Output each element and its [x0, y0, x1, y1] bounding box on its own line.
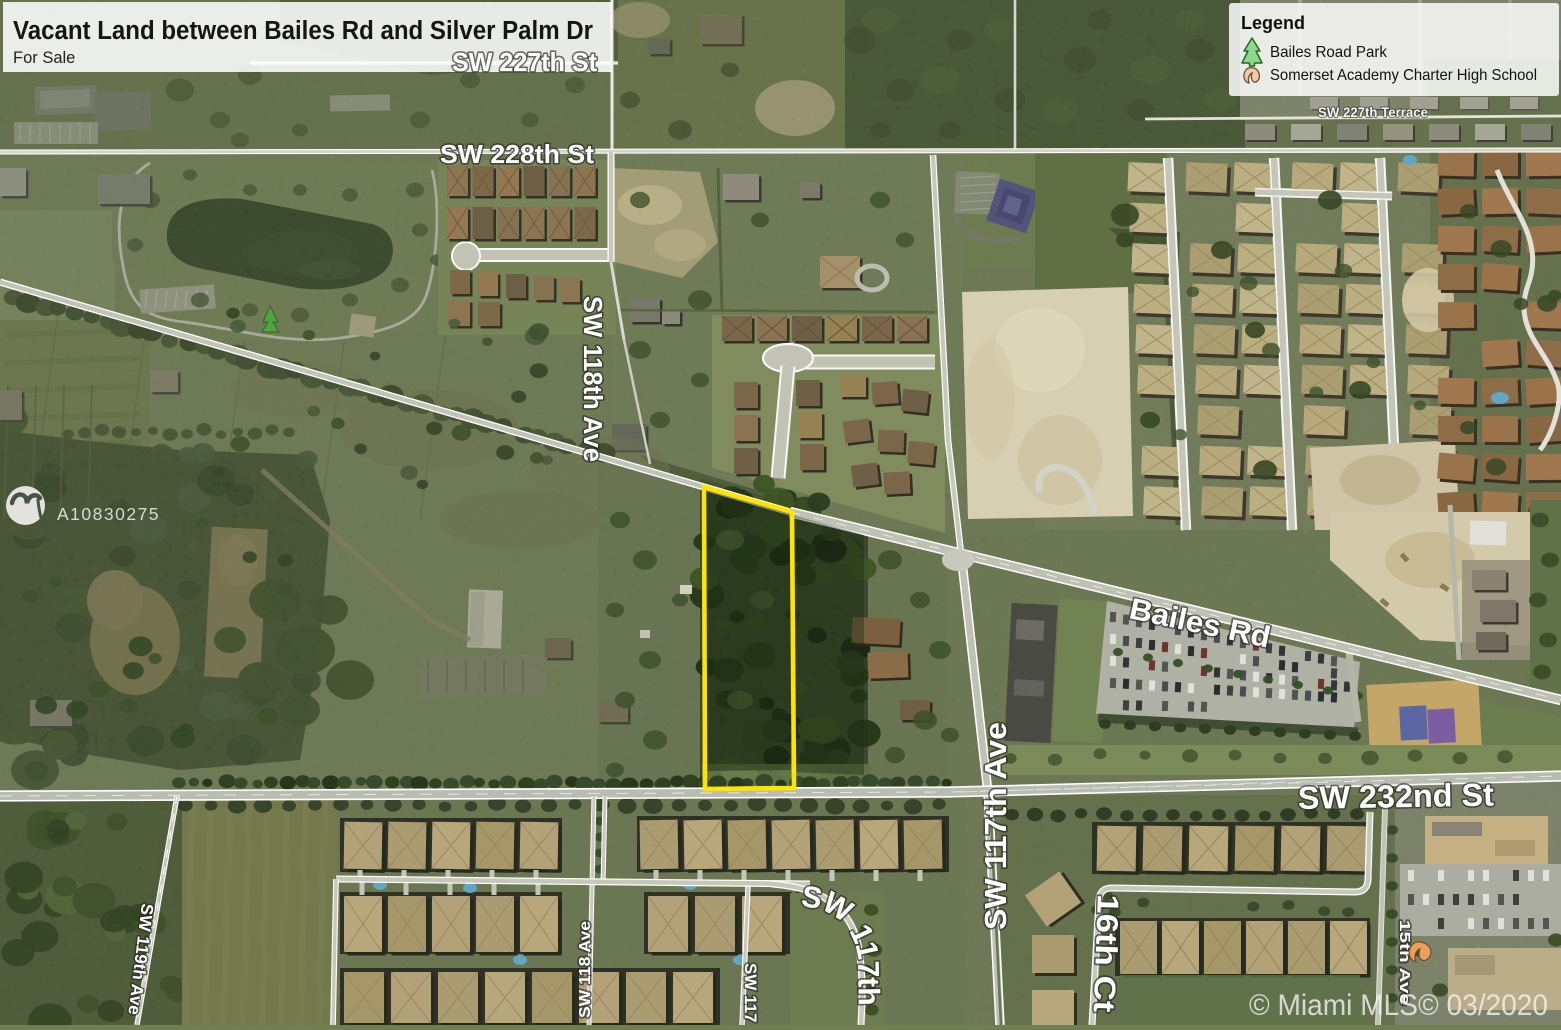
svg-text:Legend: Legend [1241, 13, 1305, 33]
svg-text:SW 118th Ave: SW 118th Ave [578, 296, 606, 462]
svg-text:Bailes Road Park: Bailes Road Park [1270, 44, 1388, 61]
svg-text:SW 118 Ave: SW 118 Ave [577, 921, 594, 1018]
svg-text:SW 227th Terrace: SW 227th Terrace [1318, 105, 1428, 120]
svg-text:SW 227th St: SW 227th St [452, 47, 597, 77]
svg-text:16th Ct: 16th Ct [1087, 894, 1124, 1013]
svg-text:Somerset Academy Charter High: Somerset Academy Charter High School [1270, 67, 1537, 84]
svg-text:A10830275: A10830275 [57, 504, 160, 524]
svg-text:SW 228th St: SW 228th St [440, 139, 594, 169]
svg-text:Vacant Land between Bailes Rd: Vacant Land between Bailes Rd and Silver… [13, 17, 593, 45]
svg-text:SW 117th Ave: SW 117th Ave [978, 722, 1013, 930]
svg-text:SW 232nd St: SW 232nd St [1297, 777, 1494, 816]
svg-text:For Sale: For Sale [13, 49, 75, 67]
svg-text:SW 117: SW 117 [741, 963, 760, 1023]
svg-text:© Miami MLS© 03/2020: © Miami MLS© 03/2020 [1249, 989, 1548, 1022]
